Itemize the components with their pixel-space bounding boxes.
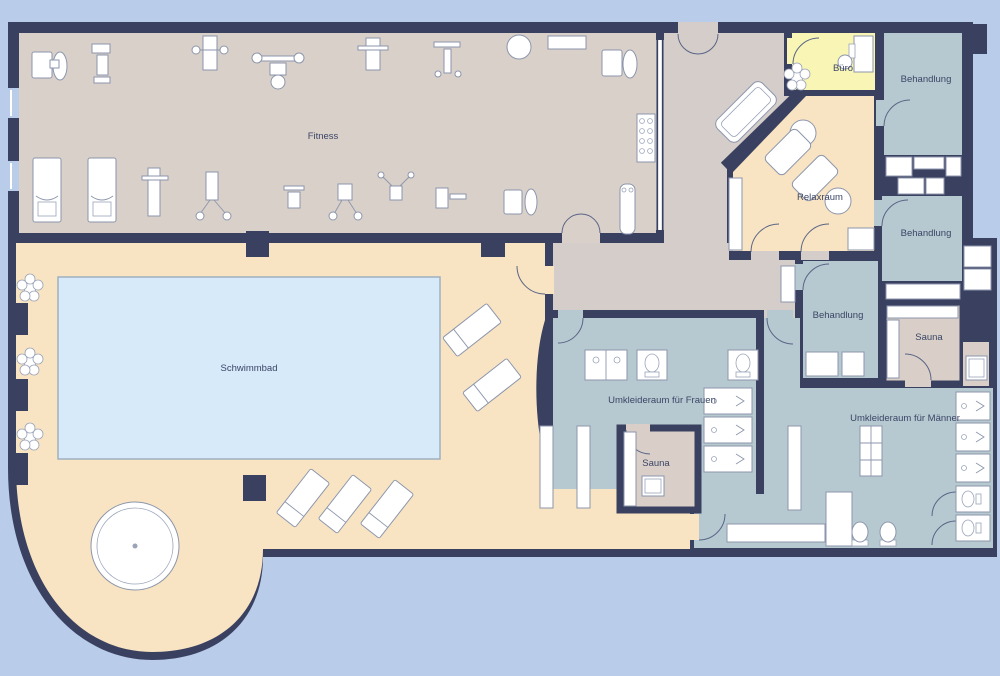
sauna-herren-door (905, 378, 931, 387)
maenner-door-opening (767, 310, 793, 318)
toilet-icon (637, 350, 667, 380)
pillar (481, 233, 505, 257)
behandlung3-door-opening (795, 264, 803, 290)
shower-icon (704, 417, 752, 443)
shower-icon (956, 423, 990, 451)
locker-icon (860, 426, 882, 476)
cabinet-icon (964, 269, 991, 290)
treadmill-icon (33, 158, 61, 222)
window (6, 88, 19, 118)
window-glass (10, 163, 12, 189)
floor-plan: Fitness Schwimmbad Büro Behandlung Relax… (0, 0, 1000, 676)
locker-icon (577, 426, 590, 508)
toilet-icon (728, 350, 758, 380)
label-fitness: Fitness (308, 131, 339, 142)
washer-icon (946, 157, 961, 176)
sauna-heater-icon (642, 476, 664, 496)
label-umkleide-maenner: Umkleideraum für Männer (850, 413, 960, 424)
counter-icon (914, 157, 944, 169)
locker-icon (540, 426, 553, 508)
sink-icon (898, 178, 924, 194)
cabinet-icon (886, 157, 912, 176)
label-behandlung-3: Behandlung (813, 310, 864, 321)
sink-icon (926, 178, 944, 194)
toilet-icon (956, 515, 990, 541)
cabinet-icon (848, 228, 874, 250)
behandlung1-door-opening (876, 100, 884, 126)
dumbbell-rack-icon (637, 114, 655, 162)
pillar (10, 379, 28, 411)
window (6, 161, 19, 191)
cabinet-icon (964, 246, 991, 267)
sauna-damen-door (626, 424, 650, 432)
label-umkleide-frauen: Umkleideraum für Frauen (608, 395, 716, 406)
sink-icon (806, 352, 838, 376)
buero-door-opening (787, 38, 793, 64)
exercise-machine-icon (504, 189, 537, 215)
frauen-door-opening (558, 310, 583, 318)
pillar (243, 475, 266, 501)
behandlung2-door-opening (874, 200, 882, 226)
floor-plan-canvas: Fitness Schwimmbad Büro Behandlung Relax… (0, 0, 1000, 676)
sauna-bench-icon (624, 432, 636, 506)
label-sauna-damen: Sauna (642, 458, 670, 469)
room-behandlung-1 (884, 33, 962, 155)
pillar (246, 231, 269, 257)
weight-bench-icon (548, 36, 586, 49)
fitness-door-opening (562, 233, 600, 243)
sink-icon (585, 350, 627, 380)
toilet-icon (956, 486, 990, 512)
exercise-ball-icon (507, 35, 531, 59)
toilet-icon (880, 522, 896, 546)
main-entrance-opening (678, 22, 718, 34)
label-behandlung-2: Behandlung (901, 228, 952, 239)
sauna-bench-icon (887, 320, 899, 378)
label-buero: Büro (833, 63, 853, 74)
treadmill-icon (88, 158, 116, 222)
label-relaxraum: Relaxraum (797, 192, 843, 203)
shower-icon (704, 446, 752, 472)
bench-icon (727, 524, 825, 542)
pillar (10, 453, 28, 485)
toilet-icon (852, 522, 868, 546)
label-behandlung-1: Behandlung (901, 74, 952, 85)
niche-cabinet-icon (781, 266, 795, 302)
shower-icon (956, 454, 990, 482)
label-schwimmbad: Schwimmbad (220, 363, 277, 374)
label-sauna-herren: Sauna (915, 332, 943, 343)
deck-rear-door (690, 514, 699, 540)
sauna-heater-icon (966, 356, 987, 380)
pillar (973, 24, 987, 54)
deck-door-opening (545, 266, 554, 294)
stair-stepper-icon (620, 184, 635, 234)
shower-icon (956, 392, 990, 420)
locker-icon (826, 492, 852, 546)
relax-door-opening (751, 251, 779, 260)
cabinet-icon (842, 352, 864, 376)
sauna-bench-icon (887, 306, 958, 318)
exercise-machine-icon (602, 50, 637, 78)
window-glass (10, 90, 12, 116)
exercise-machine-icon (32, 52, 67, 80)
bench-icon (788, 426, 801, 510)
whirlpool-icon (91, 502, 179, 590)
shelf-icon (729, 178, 742, 250)
pillar (10, 303, 28, 335)
relax-door-opening-2 (801, 251, 829, 260)
bench-icon (886, 284, 960, 299)
